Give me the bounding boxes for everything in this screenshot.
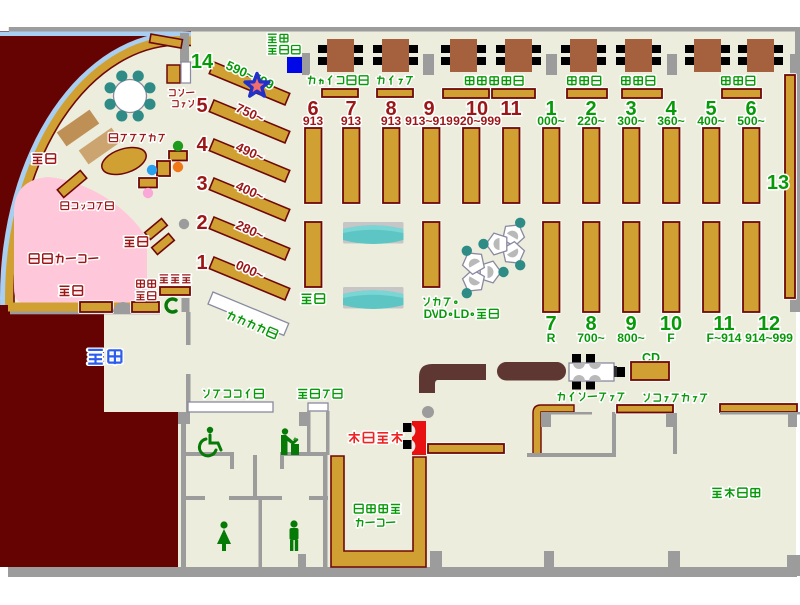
svg-text:700~: 700~ [577, 331, 604, 345]
svg-text:913: 913 [381, 114, 402, 128]
svg-text:220~: 220~ [577, 114, 604, 128]
svg-text:914~999: 914~999 [745, 331, 793, 345]
svg-text:14: 14 [191, 51, 214, 73]
svg-text:1: 1 [196, 252, 207, 274]
svg-text:4: 4 [196, 134, 208, 156]
svg-text:500~: 500~ [737, 114, 764, 128]
svg-text:D: D [439, 307, 448, 321]
svg-text:400~: 400~ [697, 114, 724, 128]
svg-text:D: D [461, 307, 470, 321]
svg-text:913: 913 [341, 114, 362, 128]
svg-text:913~919: 913~919 [405, 114, 453, 128]
svg-text:R: R [547, 331, 556, 345]
svg-text:5: 5 [196, 95, 207, 117]
svg-text:360~: 360~ [657, 114, 684, 128]
svg-text:13: 13 [767, 172, 789, 194]
svg-text:000~: 000~ [537, 114, 564, 128]
svg-text:2: 2 [196, 212, 207, 234]
svg-text:3: 3 [196, 173, 207, 195]
svg-text:F: F [667, 331, 674, 345]
svg-text:11: 11 [500, 98, 521, 120]
svg-text:920~999: 920~999 [453, 114, 501, 128]
svg-text:913: 913 [303, 114, 324, 128]
svg-text:F~914: F~914 [707, 331, 742, 345]
svg-text:300~: 300~ [617, 114, 644, 128]
svg-text:800~: 800~ [617, 331, 644, 345]
